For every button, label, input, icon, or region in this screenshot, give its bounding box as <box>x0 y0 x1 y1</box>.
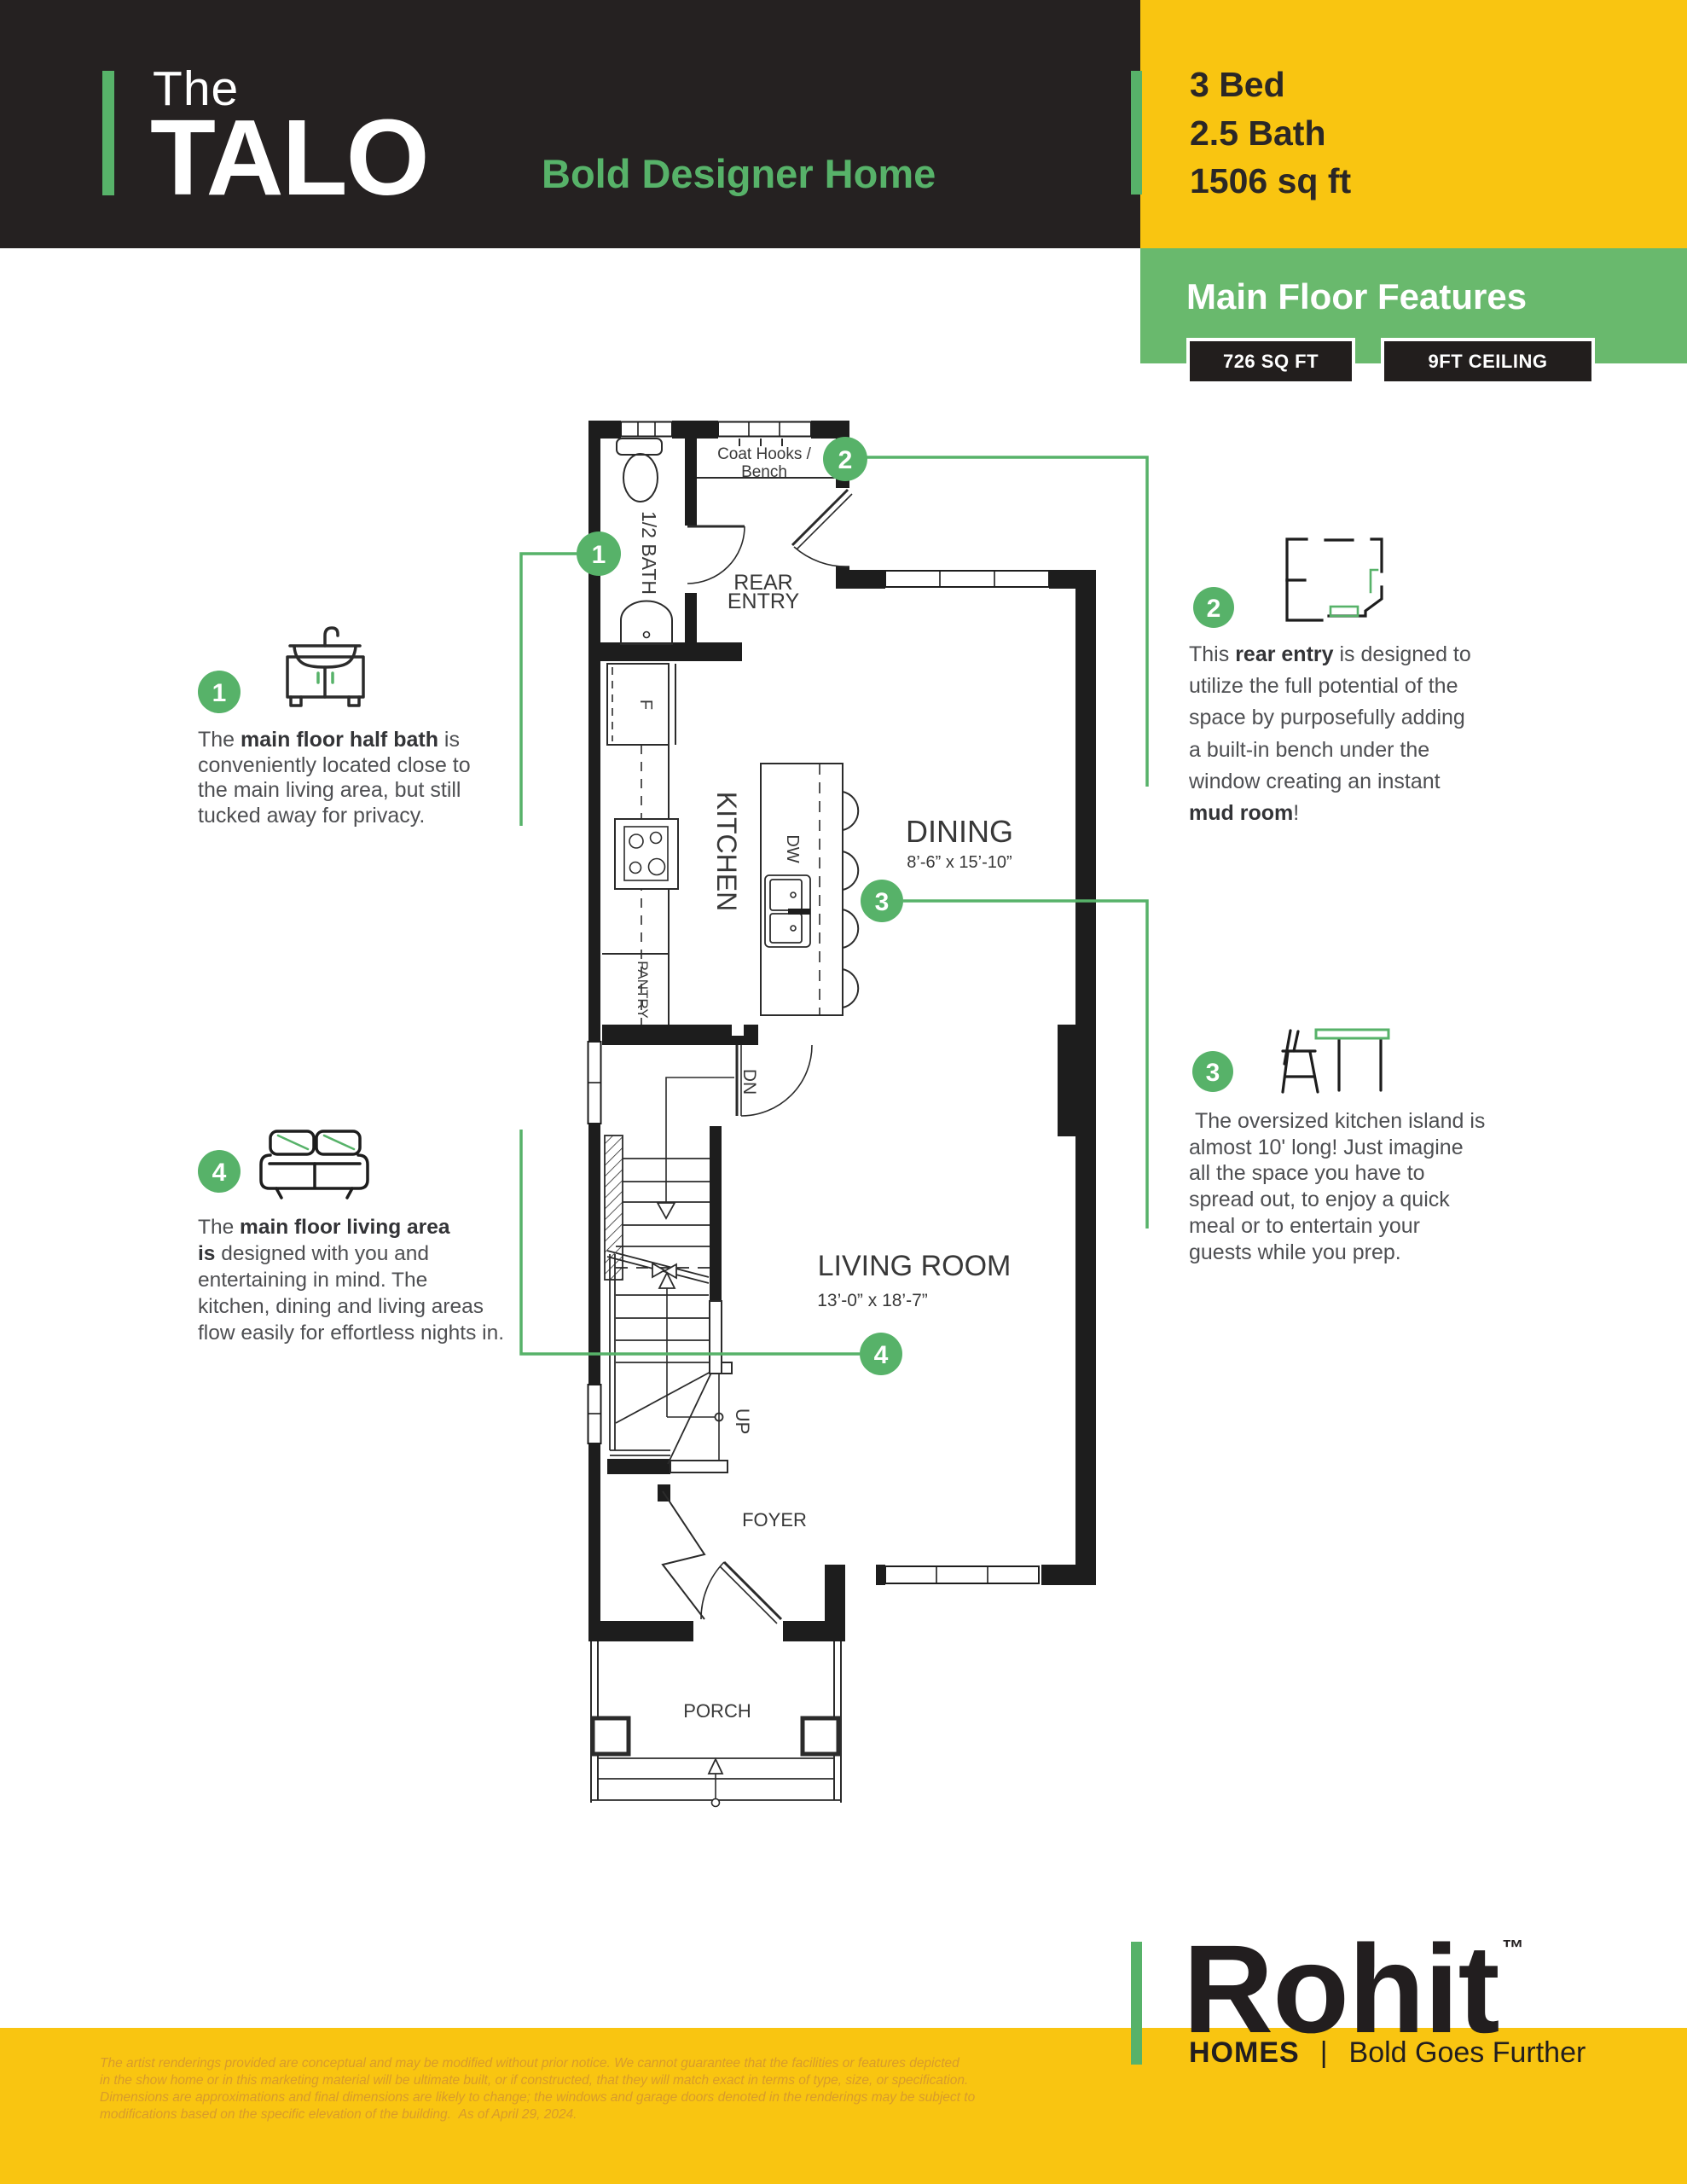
svg-text:4: 4 <box>874 1341 889 1369</box>
svg-text:F: F <box>636 700 655 710</box>
svg-text:UP: UP <box>732 1409 753 1435</box>
svg-text:Coat Hooks /: Coat Hooks / <box>717 445 812 463</box>
svg-text:1: 1 <box>212 679 227 707</box>
svg-text:KITCHEN: KITCHEN <box>711 792 742 911</box>
svg-text:DN: DN <box>739 1069 759 1095</box>
svg-text:2: 2 <box>838 446 853 474</box>
svg-text:Bench: Bench <box>741 463 787 481</box>
svg-text:FOYER: FOYER <box>742 1509 807 1531</box>
svg-text:DW: DW <box>783 834 802 863</box>
svg-text:1: 1 <box>592 541 606 569</box>
svg-text:3: 3 <box>875 888 890 916</box>
svg-text:PANTRY: PANTRY <box>635 961 651 1018</box>
svg-text:13’-0” x 18’-7”: 13’-0” x 18’-7” <box>817 1291 928 1310</box>
svg-text:1/2 BATH: 1/2 BATH <box>638 511 660 595</box>
svg-text:DINING: DINING <box>906 814 1013 849</box>
svg-text:LIVING ROOM: LIVING ROOM <box>818 1250 1012 1282</box>
svg-text:2: 2 <box>1207 595 1221 623</box>
svg-text:3: 3 <box>1206 1059 1220 1087</box>
svg-text:8’-6” x 15’-10”: 8’-6” x 15’-10” <box>907 853 1012 872</box>
svg-text:4: 4 <box>212 1159 227 1187</box>
svg-text:ENTRY: ENTRY <box>728 590 800 613</box>
svg-text:PORCH: PORCH <box>683 1700 751 1722</box>
